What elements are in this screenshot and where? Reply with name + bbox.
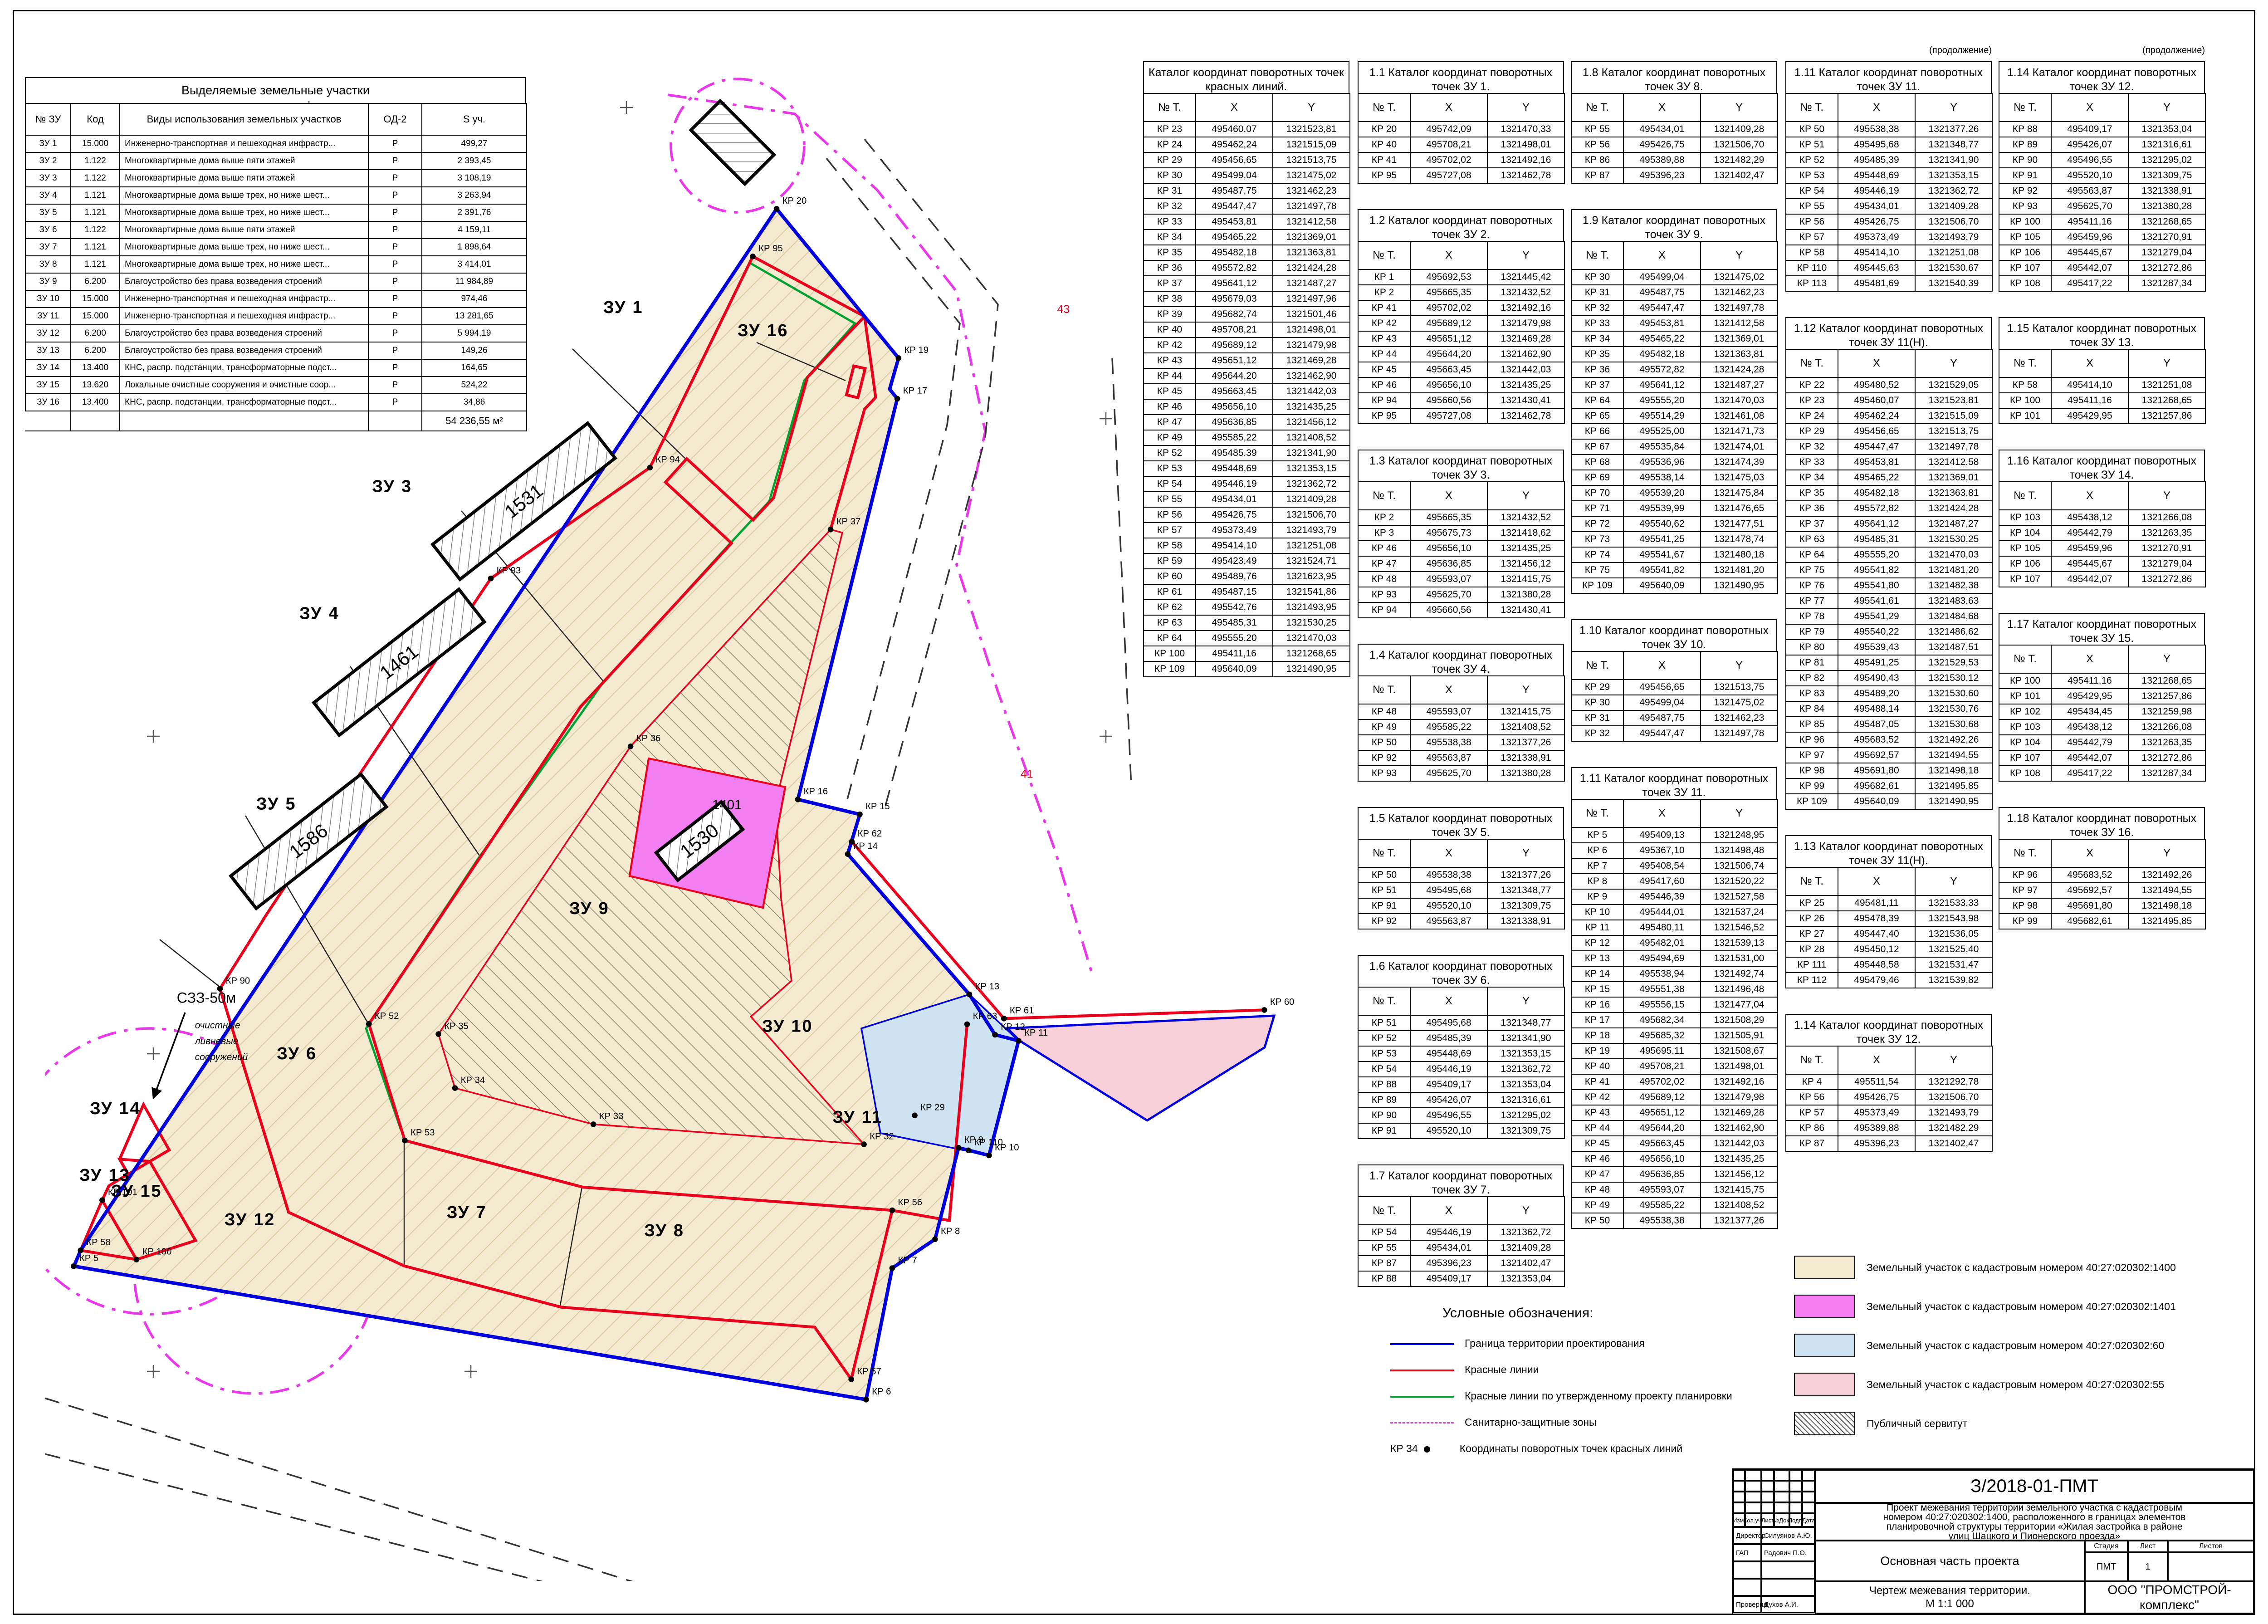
coord-row: КР 44495644,201321462,90	[1144, 368, 1350, 384]
drawing-sheet: 1531146115861530КР 20КР 19КР 17КР 16КР 1…	[0, 0, 2268, 1624]
coord-row: КР 70495539,201321475,84	[1571, 485, 1778, 501]
map-text-label: ливневые	[195, 1036, 239, 1047]
coord-row: КР 15495551,381321496,48	[1571, 982, 1778, 997]
legend-line-item: Красные линии по утвержденному проекту п…	[1390, 1390, 1732, 1402]
kr-point-label: КР 33	[599, 1111, 624, 1121]
catalog-t2: 1.2 Каталог координат поворотных точек З…	[1358, 209, 1564, 424]
coord-row: КР 107495442,071321272,86	[1999, 750, 2205, 766]
coord-row: КР 91495520,101321309,75	[1999, 168, 2205, 183]
catalog-title: Каталог координат поворотных точек красн…	[1143, 61, 1349, 93]
coord-row: КР 47495636,851321456,12	[1571, 1167, 1778, 1182]
rev-grid-cell	[1774, 1492, 1789, 1502]
zu-label: ЗУ 15	[111, 1182, 162, 1201]
coord-row: КР 1495692,531321445,42	[1358, 269, 1564, 285]
legend-area-label: Земельный участок с кадастровым номером …	[1867, 1301, 2176, 1313]
legend-line-item: Граница территории проектирования	[1390, 1337, 1645, 1350]
catalog-t8: 1.8 Каталог координат поворотных точек З…	[1571, 61, 1777, 184]
kr-point-dot	[890, 1208, 895, 1213]
coord-row: КР 44495644,201321462,90	[1571, 1120, 1778, 1136]
kr-point-label: КР 63	[973, 1012, 997, 1022]
zu-label: ЗУ 9	[569, 899, 609, 918]
sheets-label: Листов	[2168, 1541, 2254, 1552]
coord-row: КР 41495702,021321492,16	[1358, 152, 1564, 168]
coord-row: КР 47495636,851321456,12	[1358, 556, 1564, 572]
role-name-cell	[1761, 1579, 1815, 1596]
coord-row: КР 57495373,491321493,79	[1786, 230, 1992, 245]
coord-row: КР 37495641,121321487,27	[1571, 377, 1778, 393]
coord-row: КР 93495625,701321380,28	[1358, 587, 1564, 602]
catalog-header-row: № Т.XY	[1571, 799, 1778, 827]
kr-point-dot	[134, 1257, 140, 1262]
rev-grid-cell	[1733, 1470, 1745, 1481]
coord-row: КР 48495593,071321415,75	[1571, 1182, 1778, 1198]
coord-row: КР 42495689,121321479,98	[1144, 338, 1350, 353]
coord-row: КР 52495485,391321341,90	[1144, 445, 1350, 461]
catalog-header-row: № Т.XY	[1144, 93, 1350, 122]
coord-row: КР 99495682,611321495,85	[1999, 914, 2205, 929]
coord-row: КР 26495478,391321543,98	[1786, 911, 1992, 926]
kr-point-dot	[1016, 1038, 1022, 1044]
sheet-value: 1	[2128, 1552, 2168, 1581]
kr-point-dot	[845, 851, 851, 857]
kr-point-dot	[857, 812, 863, 817]
role-cell	[1733, 1579, 1761, 1596]
plot-row: ЗУ 61.122Многоквартирные дома выше пяти …	[25, 221, 527, 239]
catalog-header-row: № Т.XY	[1786, 1046, 1992, 1074]
catalog-header-row: № Т.XY	[1999, 349, 2205, 377]
doc-number: З/2018-01-ПМТ	[1815, 1470, 2254, 1503]
legend-title: Условные обозначения:	[1442, 1306, 1593, 1321]
kr-point-dot	[956, 1145, 962, 1151]
coord-row: КР 50495538,381321377,26	[1571, 1213, 1778, 1228]
coord-row: КР 34495465,221321369,01	[1786, 470, 1992, 485]
legend-line-item: КР 34 Координаты поворотных точек красны…	[1390, 1443, 1682, 1455]
catalog-title: 1.17 Каталог координат поворотных точек …	[1999, 613, 2205, 645]
coord-row: КР 56495426,751321506,70	[1786, 1090, 1992, 1105]
coord-row: КР 32495447,471321497,78	[1571, 300, 1778, 316]
continuation-note-col5: (продолжение)	[2071, 45, 2205, 56]
coord-row: КР 101495429,951321257,86	[1999, 689, 2205, 704]
kr-point-dot	[848, 1376, 854, 1382]
catalog-t17: 1.17 Каталог координат поворотных точек …	[1999, 613, 2205, 782]
coord-row: КР 65495514,291321461,08	[1571, 408, 1778, 424]
plot-row: ЗУ 1413.400КНС, распр. подстанции, транс…	[25, 359, 527, 377]
catalog-header-row: № Т.XY	[1358, 676, 1564, 704]
coord-row: КР 55495434,011321409,28	[1571, 122, 1778, 137]
plot-row: ЗУ 21.122Многоквартирные дома выше пяти …	[25, 152, 527, 170]
coord-row: КР 41495702,021321492,16	[1358, 300, 1564, 316]
coord-row: КР 28495450,121321525,40	[1786, 942, 1992, 957]
kr-point-dot	[78, 1247, 83, 1253]
zu-label: ЗУ 6	[277, 1044, 317, 1063]
coord-row: КР 96495683,521321492,26	[1999, 867, 2205, 883]
coord-row: КР 46495656,101321435,25	[1144, 399, 1350, 415]
kr-point-label: КР 100	[142, 1247, 172, 1257]
coord-row: КР 64495555,201321470,03	[1786, 547, 1992, 563]
kr-point-dot	[647, 465, 653, 471]
catalog-t16: 1.16 Каталог координат поворотных точек …	[1999, 450, 2205, 587]
drawing-name: Чертеж межевания территории. М 1:1 000	[1815, 1581, 2085, 1614]
coord-row: КР 100495411,161321268,65	[1999, 214, 2205, 230]
coord-row: КР 76495541,801321482,38	[1786, 578, 1992, 593]
kr-point-label: КР 57	[857, 1366, 881, 1376]
rev-header-cell: Дата	[1802, 1513, 1815, 1527]
grid-cross	[1100, 730, 1112, 743]
coord-row: КР 107495442,071321272,86	[1999, 572, 2205, 587]
kr-point-label: КР 29	[920, 1103, 945, 1113]
catalog-header-row: № Т.XY	[1571, 651, 1778, 680]
coord-row: КР 56495426,751321506,70	[1786, 214, 1992, 230]
kr-point-dot	[99, 1197, 105, 1203]
plot-row: ЗУ 126.200Благоустройство без права возв…	[25, 325, 527, 342]
kr-point-label: КР 12	[1001, 1022, 1025, 1032]
coord-row: КР 66495525,001321471,73	[1571, 424, 1778, 439]
catalog-t9: 1.9 Каталог координат поворотных точек З…	[1571, 209, 1777, 594]
catalog-t5: 1.5 Каталог координат поворотных точек З…	[1358, 807, 1564, 929]
stage-label: Стадия	[2085, 1541, 2128, 1552]
legend-line-item: Санитарно-защитные зоны	[1390, 1416, 1597, 1428]
coord-row: КР 14495538,941321492,74	[1571, 966, 1778, 982]
zu-label: ЗУ 12	[225, 1210, 275, 1229]
rev-header-cell: №Док.	[1774, 1513, 1789, 1527]
catalog-header-row: № Т.XY	[1571, 241, 1778, 269]
plots-table-title: Выделяемые земельные участки	[25, 77, 526, 103]
kr-point-label: КР 36	[636, 734, 661, 744]
catalog-t7: 1.7 Каталог координат поворотных точек З…	[1358, 1164, 1564, 1287]
coord-row: КР 31495487,751321462,23	[1571, 710, 1778, 726]
role-name-cell: Радович П.О.	[1761, 1544, 1815, 1561]
building-footprint	[691, 101, 774, 184]
plot-row: ЗУ 115.000Инженерно-транспортная и пешех…	[25, 135, 527, 152]
coord-row: КР 6495367,101321498,48	[1571, 843, 1778, 858]
coord-row: КР 11495480,111321546,52	[1571, 920, 1778, 935]
zu-label: ЗУ 8	[644, 1221, 684, 1240]
coord-row: КР 55495434,011321409,28	[1144, 492, 1350, 507]
coord-row: КР 41495702,021321492,16	[1571, 1074, 1778, 1090]
coord-row: КР 57495373,491321493,79	[1786, 1105, 1992, 1120]
coord-row: КР 102495434,451321259,98	[1999, 704, 2205, 719]
coord-row: КР 91495520,101321309,75	[1358, 1123, 1564, 1139]
coord-row: КР 108495417,221321287,34	[1999, 766, 2205, 781]
coord-row: КР 5495409,131321248,95	[1571, 827, 1778, 843]
catalog-header-row: № Т.XY	[1786, 349, 1992, 377]
coord-row: КР 22495480,521321529,05	[1786, 377, 1992, 393]
coord-row: КР 58495414,101321251,08	[1999, 377, 2205, 393]
rev-grid-cell	[1745, 1502, 1761, 1513]
kr-point-dot	[366, 1021, 372, 1027]
kr-point-label: КР 13	[975, 982, 1000, 992]
map-text-label: очистные	[195, 1020, 240, 1031]
boundary-line-sample	[1390, 1343, 1454, 1345]
coord-row: КР 29495456,651321513,75	[1786, 424, 1992, 439]
coord-row: КР 35495482,181321363,81	[1571, 347, 1778, 362]
project-description: Проект межевания территории земельного у…	[1815, 1503, 2254, 1541]
coord-row: КР 45495663,451321442,03	[1571, 1136, 1778, 1151]
coord-row: КР 64495555,201321470,03	[1571, 393, 1778, 408]
coord-row: КР 46495656,101321435,25	[1358, 541, 1564, 556]
coord-row: КР 106495445,671321279,04	[1999, 245, 2205, 260]
catalog-title: 1.11 Каталог координат поворотных точек …	[1571, 767, 1777, 799]
coord-row: КР 90495496,551321295,02	[1999, 152, 2205, 168]
coord-row: КР 30495499,041321475,02	[1144, 168, 1350, 183]
kr-point-dot	[774, 206, 780, 212]
kr-point-dot	[828, 527, 834, 533]
kr-point-label: КР 52	[375, 1011, 399, 1021]
kr-point-dot	[1261, 1007, 1267, 1013]
coord-row: КР 13495494,691321531,00	[1571, 951, 1778, 966]
kr-point-label: КР 35	[444, 1021, 469, 1031]
coord-row: КР 64495555,201321470,03	[1144, 631, 1350, 646]
road-dashed-line	[1112, 358, 1131, 787]
coord-row: КР 87495396,231321402,47	[1786, 1136, 1992, 1151]
catalog-t15: 1.15 Каталог координат поворотных точек …	[1999, 317, 2205, 424]
role-name-cell: Духов А.И.	[1761, 1596, 1815, 1613]
coord-row: КР 43495651,121321469,28	[1144, 353, 1350, 368]
kr-point-label: КР 58	[86, 1238, 111, 1247]
allocated-plots-table: Выделяемые земельные участки№ ЗУКодВиды …	[25, 77, 526, 431]
legend-area-swatch	[1794, 1334, 1855, 1357]
coord-row: КР 16495556,151321477,04	[1571, 997, 1778, 1013]
kr-point-label: КР 32	[870, 1131, 894, 1141]
coord-row: КР 104495442,791321263,35	[1999, 525, 2205, 541]
kr-point-label: КР 14	[854, 841, 878, 851]
coord-row: КР 29495456,651321513,75	[1144, 152, 1350, 168]
legend-area-label: Земельный участок с кадастровым номером …	[1867, 1379, 2164, 1391]
coord-row: КР 17495682,341321508,29	[1571, 1013, 1778, 1028]
coord-row: КР 54495446,191321362,72	[1358, 1225, 1564, 1240]
kr-point-label: КР 7	[898, 1255, 917, 1265]
plot-row: ЗУ 81.121Многоквартирные дома выше трех,…	[25, 256, 527, 273]
coord-row: КР 48495593,071321415,75	[1358, 704, 1564, 719]
kr-point-label: КР 56	[898, 1198, 923, 1208]
coord-row: КР 98495691,801321498,18	[1999, 898, 2205, 914]
kr-point-label: КР 93	[497, 566, 521, 576]
kr-point-label: КР 15	[865, 802, 890, 812]
coord-row: КР 35495482,181321363,81	[1144, 245, 1350, 260]
kr-point-label: КР 94	[655, 455, 680, 465]
plot-row: ЗУ 1115.000Инженерно-транспортная и пеше…	[25, 308, 527, 325]
kr-point-label: КР 5	[79, 1253, 98, 1263]
sheets-value	[2168, 1552, 2254, 1581]
grid-cross	[464, 1365, 477, 1378]
catalog-header-row: № Т.XY	[1358, 482, 1564, 510]
continuation-note-col4: (продолжение)	[1858, 45, 1992, 56]
catalog-t13: 1.13 Каталог координат поворотных точек …	[1785, 835, 1992, 988]
coord-row: КР 100495411,161321268,65	[1999, 673, 2205, 689]
coord-row: КР 49495585,221321408,52	[1144, 430, 1350, 445]
coord-row: КР 112495479,461321539,82	[1786, 973, 1992, 988]
plot-row: ЗУ 41.121Многоквартирные дома выше трех,…	[25, 187, 527, 204]
plot-row: ЗУ 1613.400КНС, распр. подстанции, транс…	[25, 394, 527, 411]
coord-row: КР 94495660,561321430,41	[1358, 602, 1564, 618]
catalog-title: 1.2 Каталог координат поворотных точек З…	[1358, 209, 1564, 241]
map-text-label: 41	[1021, 768, 1033, 781]
coord-row: КР 20495742,091321470,33	[1358, 122, 1564, 137]
kr-point-dot	[861, 1141, 867, 1147]
coord-row: КР 52495485,391321341,90	[1358, 1031, 1564, 1046]
coord-row: КР 53495448,691321353,15	[1786, 168, 1992, 183]
coord-row: КР 54495446,191321362,72	[1786, 183, 1992, 199]
coord-row: КР 63495485,311321530,25	[1786, 532, 1992, 547]
catalog-title: 1.13 Каталог координат поворотных точек …	[1785, 835, 1992, 867]
coord-row: КР 75495541,821321481,20	[1786, 563, 1992, 578]
coord-row: КР 54495446,191321362,72	[1358, 1061, 1564, 1077]
rev-grid-cell	[1733, 1481, 1745, 1492]
coord-row: КР 43495651,121321469,28	[1571, 1105, 1778, 1120]
plot-row: ЗУ 51.121Многоквартирные дома выше трех,…	[25, 204, 527, 221]
catalog-title: 1.18 Каталог координат поворотных точек …	[1999, 807, 2205, 839]
catalog-header-row: № Т.XY	[1571, 93, 1778, 122]
rev-grid-cell	[1789, 1481, 1802, 1492]
coord-row: КР 40495708,211321498,01	[1358, 137, 1564, 152]
zu-label: ЗУ 11	[832, 1108, 882, 1127]
coord-row: КР 103495438,121321266,08	[1999, 719, 2205, 735]
coord-row: КР 50495538,381321377,26	[1786, 122, 1992, 137]
coord-row: КР 23495460,071321523,81	[1144, 122, 1350, 137]
kr-point-dot	[591, 1121, 596, 1127]
kr-point-dot	[452, 1085, 458, 1091]
plot-row: ЗУ 96.200Благоустройство без права возве…	[25, 273, 527, 290]
coord-row: КР 75495541,821321481,20	[1571, 563, 1778, 578]
catalog-t4: 1.4 Каталог координат поворотных точек З…	[1358, 644, 1564, 782]
catalog-header-row: № Т.XY	[1999, 645, 2205, 673]
coord-row: КР 109495640,091321490,95	[1144, 661, 1350, 677]
coord-row: КР 81495491,251321529,53	[1786, 655, 1992, 670]
coord-row: КР 10495444,011321537,24	[1571, 905, 1778, 920]
rev-grid-cell	[1745, 1492, 1761, 1502]
rev-grid-cell	[1802, 1481, 1815, 1492]
coord-row: КР 62495542,761321493,95	[1144, 600, 1350, 615]
coord-row: КР 51495495,681321348,77	[1358, 883, 1564, 898]
kr-point-label: КР 6	[872, 1387, 891, 1397]
coord-row: КР 47495636,851321456,12	[1144, 415, 1350, 430]
coord-row: КР 103495438,121321266,08	[1999, 510, 2205, 525]
legend-area-label: Земельный участок с кадастровым номером …	[1867, 1340, 2164, 1352]
coord-row: КР 18495685,321321505,91	[1571, 1028, 1778, 1043]
zu-label: ЗУ 10	[762, 1017, 813, 1036]
coord-row: КР 61495487,151321541,86	[1144, 584, 1350, 600]
kr-point-dot	[628, 744, 634, 749]
plot-row: ЗУ 1513.620Локальные очистные сооружения…	[25, 377, 527, 394]
rev-grid-cell	[1761, 1492, 1774, 1502]
coord-row: КР 36495572,821321424,28	[1571, 362, 1778, 377]
rev-grid-cell	[1745, 1470, 1761, 1481]
kr-point-dot	[992, 1032, 998, 1038]
plots-total-row: 54 236,55 м²	[25, 411, 527, 431]
kr-point-dot	[896, 355, 902, 361]
rev-grid-cell	[1802, 1470, 1815, 1481]
zu-label: ЗУ 14	[90, 1099, 141, 1118]
szz-arrow	[153, 1013, 185, 1098]
grid-cross	[1100, 412, 1112, 425]
kr-point-dot	[986, 1153, 992, 1159]
coord-row: КР 32495447,471321497,78	[1144, 199, 1350, 214]
plots-header-row: № ЗУКодВиды использования земельных учас…	[25, 103, 527, 135]
kr-point-dot	[71, 1263, 77, 1269]
catalog-t14c: 1.14 Каталог координат поворотных точек …	[1999, 61, 2205, 292]
coord-row: КР 45495663,451321442,03	[1144, 384, 1350, 399]
coord-row: КР 97495692,571321494,55	[1999, 883, 2205, 898]
coord-row: КР 37495641,121321487,27	[1144, 276, 1350, 291]
coord-row: КР 79495540,221321486,62	[1786, 624, 1992, 640]
coord-row: КР 69495538,141321475,03	[1571, 470, 1778, 485]
catalog-header-row: № Т.XY	[1786, 93, 1992, 122]
coord-row: КР 92495563,871321338,91	[1999, 183, 2205, 199]
plot-row: ЗУ 1015.000Инженерно-транспортная и пеше…	[25, 290, 527, 308]
coord-row: КР 111495448,581321531,47	[1786, 957, 1992, 973]
project-part: Основная часть проекта	[1815, 1541, 2085, 1581]
kr-point-label: КР 17	[903, 386, 928, 396]
kr-point-dot	[890, 1265, 895, 1271]
coord-row: КР 63495485,311321530,25	[1144, 615, 1350, 631]
kr-point-dot	[435, 1031, 441, 1037]
catalog-t11: 1.11 Каталог координат поворотных точек …	[1571, 767, 1777, 1229]
kr-point-dot	[967, 992, 973, 998]
coord-row: КР 30495499,041321475,02	[1571, 269, 1778, 285]
coord-row: КР 34495465,221321369,01	[1571, 331, 1778, 347]
plots-total-value: 54 236,55 м²	[422, 411, 527, 431]
legend-area-swatch	[1794, 1412, 1855, 1435]
coord-row: КР 49495585,221321408,52	[1571, 1198, 1778, 1213]
grid-cross	[147, 730, 160, 743]
catalog-title: 1.10 Каталог координат поворотных точек …	[1571, 619, 1777, 651]
zu-label: ЗУ 1	[603, 298, 643, 317]
kr-point-label: КР 110	[974, 1138, 1003, 1148]
kr-point-dot	[863, 1397, 869, 1403]
rev-header-cell: Лист	[1761, 1513, 1774, 1527]
coord-row: КР 110495445,631321530,67	[1786, 260, 1992, 276]
coord-row: КР 38495679,031321497,96	[1144, 291, 1350, 307]
title-block: Изм.Кол.уч.Лист№Док.Подп.ДатаДиректорСил…	[1732, 1468, 2255, 1615]
plot-row: ЗУ 71.121Многоквартирные дома выше трех,…	[25, 239, 527, 256]
coord-row: КР 29495456,651321513,75	[1571, 680, 1778, 695]
plot-row: ЗУ 136.200Благоустройство без права возв…	[25, 342, 527, 359]
kr-point-label: КР 19	[904, 345, 929, 355]
coord-row: КР 87495396,231321402,47	[1571, 168, 1778, 183]
kr-point-dot	[964, 1022, 970, 1027]
coord-row: КР 97495692,571321494,55	[1786, 748, 1992, 763]
grid-cross	[147, 1047, 160, 1060]
kr-point-label: КР 61	[1010, 1006, 1034, 1016]
coord-row: КР 27495447,401321536,05	[1786, 926, 1992, 942]
role-cell: ГАП	[1733, 1544, 1761, 1561]
coord-row: КР 73495541,251321478,74	[1571, 532, 1778, 547]
catalog-header-row: № Т.XY	[1999, 482, 2205, 510]
rev-grid-cell	[1733, 1502, 1745, 1513]
legend-line-item: Красные линии	[1390, 1364, 1539, 1376]
szz-line-sample	[1390, 1422, 1454, 1423]
coord-row: КР 95495727,081321462,78	[1358, 168, 1564, 183]
catalog-t1: 1.1 Каталог координат поворотных точек З…	[1358, 61, 1564, 184]
catalog-t12: 1.12 Каталог координат поворотных точек …	[1785, 317, 1992, 810]
catalog-title: 1.11 Каталог координат поворотных точек …	[1785, 61, 1992, 93]
catalog-header-row: № Т.XY	[1358, 1197, 1564, 1225]
road-dashed-line	[45, 1448, 725, 1581]
rev-grid-cell	[1761, 1470, 1774, 1481]
grid-cross	[147, 1365, 160, 1378]
coord-row: КР 52495485,391321341,90	[1786, 152, 1992, 168]
kr-point-label: КР 11	[1024, 1028, 1048, 1038]
catalog-title: 1.5 Каталог координат поворотных точек З…	[1358, 807, 1564, 839]
coord-row: КР 56495426,751321506,70	[1571, 137, 1778, 152]
coord-row: КР 36495572,821321424,28	[1144, 260, 1350, 276]
catalog-title: 1.14 Каталог координат поворотных точек …	[1785, 1014, 1992, 1046]
zu-label: ЗУ 16	[738, 321, 788, 340]
rev-grid-cell	[1774, 1481, 1789, 1492]
kr-point-sample: КР 34	[1390, 1443, 1454, 1455]
catalog-title: 1.16 Каталог координат поворотных точек …	[1999, 450, 2205, 481]
catalog-title: 1.3 Каталог координат поворотных точек З…	[1358, 450, 1564, 481]
